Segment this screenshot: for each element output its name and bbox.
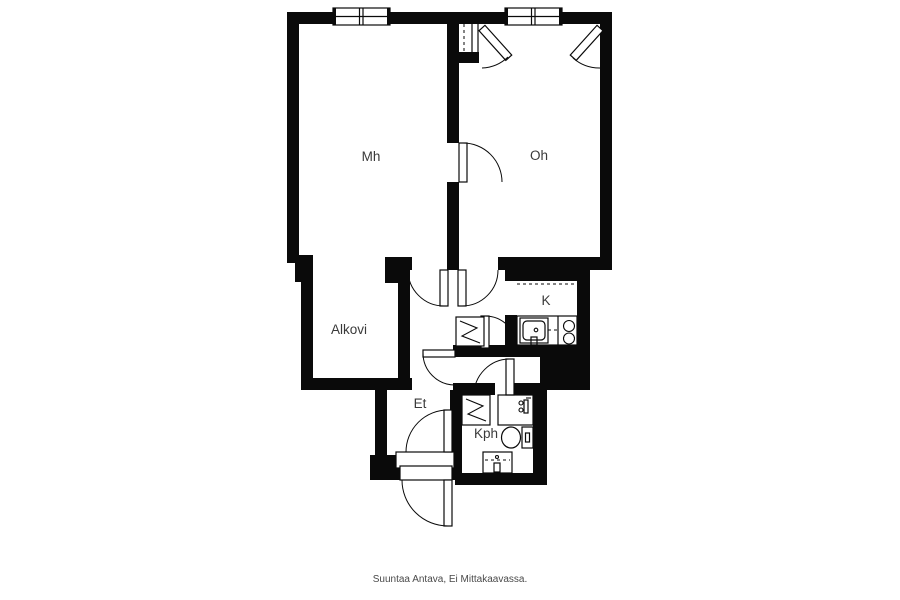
wall-segment [600, 12, 612, 270]
room-label-kph: Kph [474, 426, 498, 441]
window-oh [505, 8, 562, 25]
toilet-icon [502, 427, 534, 448]
entrance-outer-leaf [444, 480, 452, 526]
door-mh-oh [459, 143, 502, 182]
door-leaf [458, 270, 466, 306]
wall-segment [301, 378, 412, 390]
wall-segment [385, 257, 412, 270]
wall-segment [447, 24, 459, 143]
wall-segment [295, 255, 313, 282]
wall-segment [301, 280, 313, 384]
door-swing-arc [463, 143, 502, 182]
window-mh [333, 8, 390, 25]
toilet-bowl [502, 427, 521, 448]
bath-sink-icon [483, 452, 512, 473]
door-swing-arc [408, 270, 444, 306]
door-swing-arc [462, 270, 498, 306]
water-heater-icon [462, 395, 490, 425]
door-oh-to-hall [458, 270, 498, 306]
door-leaf [423, 350, 455, 357]
floorplan-drawing: Mh Oh Alkovi K Et Kph Suuntaa Antava, Ei… [0, 0, 900, 600]
wall-segment [577, 268, 590, 353]
entrance-outer-swing-arc [402, 480, 448, 526]
wall-segment [540, 357, 590, 390]
window-sash-right [570, 25, 603, 68]
sash-leaf [570, 25, 603, 60]
door-hall-to-et [423, 350, 455, 385]
shower-mixer [524, 400, 528, 413]
toilet-tank [522, 427, 533, 448]
window-jamb [505, 8, 508, 25]
door-swing-arc [423, 353, 455, 385]
room-label-alkovi: Alkovi [331, 322, 367, 337]
sash-leaf [479, 25, 512, 60]
shower-mixer-knob [519, 401, 523, 405]
entrance-inner-swing-arc [406, 410, 448, 452]
entrance-inner-leaf [444, 410, 452, 452]
shower-mixer-knob [519, 408, 523, 412]
flue-shaft [464, 24, 478, 52]
wall-segment [533, 385, 547, 480]
disclaimer-caption: Suuntaa Antava, Ei Mittakaavassa. [373, 574, 528, 585]
window-sash-left [479, 25, 512, 68]
door-leaf [440, 270, 448, 306]
entrance-door-frame [400, 466, 452, 480]
toilet-tank-button [526, 433, 530, 442]
door-leaf [506, 359, 514, 395]
room-label-mh: Mh [362, 149, 381, 164]
bath-sink-faucet [494, 463, 500, 472]
door-leaf [459, 143, 467, 182]
wall-segment [505, 315, 517, 347]
room-label-oh: Oh [530, 148, 548, 163]
window-jamb [387, 8, 390, 25]
window-jamb [559, 8, 562, 25]
wall-segment [453, 345, 590, 357]
shower-icon [498, 395, 533, 425]
floorplan-page: Mh Oh Alkovi K Et Kph Suuntaa Antava, Ei… [0, 0, 900, 600]
window-jamb [333, 8, 336, 25]
room-label-et: Et [414, 396, 427, 411]
hall-closet-icon [456, 317, 484, 346]
wall-segment [287, 12, 299, 263]
bath-sink-drain [496, 456, 499, 459]
wall-segment [390, 12, 505, 24]
wall-segment [447, 182, 459, 270]
wall-segment [398, 283, 410, 384]
wall-segment [459, 52, 479, 63]
room-label-k: K [541, 293, 550, 308]
door-mh-to-hall [408, 270, 448, 306]
entrance-door [396, 410, 454, 526]
